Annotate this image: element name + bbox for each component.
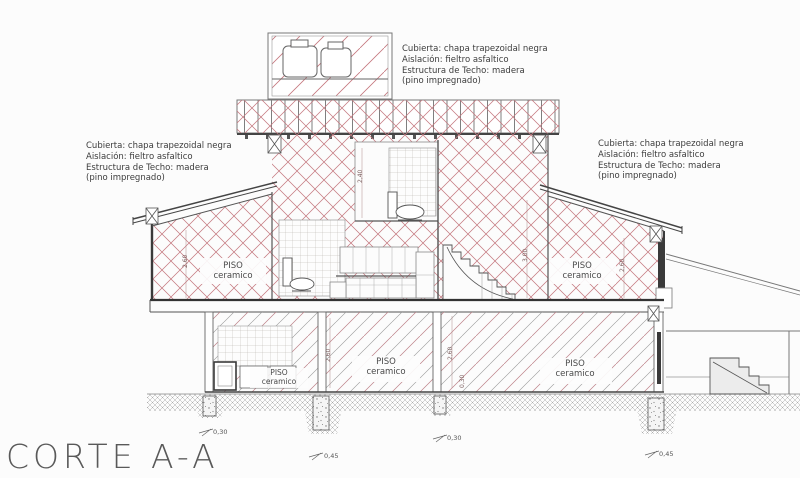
flat-roof-band [237, 100, 559, 137]
water-tank-tower [268, 33, 392, 99]
note-line: (pino impregnado) [598, 171, 744, 182]
note-line: (pino impregnado) [86, 173, 232, 184]
exterior-terrace [666, 254, 800, 394]
dimension-label: 0,30 [213, 428, 227, 436]
floor-label-lower-center: PISO ceramico [352, 357, 420, 377]
note-line: Estructura de Techo: madera [402, 66, 548, 77]
foundation-footing [434, 396, 446, 414]
tiled-wall [218, 326, 292, 366]
note-line: Aislación: fieltro asfaltico [86, 152, 232, 163]
dimension-label: 2,60 [619, 259, 626, 272]
note-line: Cubierta: chapa trapezoidal negra [598, 139, 744, 150]
note-line: Estructura de Techo: madera [86, 163, 232, 174]
kitchen-cabinets [330, 247, 434, 298]
wall-section [433, 312, 441, 392]
note-line: Aislación: fieltro asfaltico [402, 55, 548, 66]
floor-slab [150, 300, 664, 312]
drawing-title: CORTE A-A [6, 437, 219, 476]
dimension-label: 2,40 [357, 170, 364, 183]
note-line: Cubierta: chapa trapezoidal negra [86, 141, 232, 152]
ground-band [147, 394, 800, 434]
dimension-label: 2,60 [182, 255, 189, 268]
water-tank [321, 48, 351, 77]
foundation-footing [203, 396, 216, 416]
floor-label-lower-right: PISO ceramico [538, 359, 612, 379]
roof-note-top: Cubierta: chapa trapezoidal negra Aislac… [402, 44, 548, 87]
dimension-label: 0,30 [447, 434, 461, 442]
note-line: Aislación: fieltro asfaltico [598, 150, 744, 161]
roof-note-left: Cubierta: chapa trapezoidal negra Aislac… [86, 141, 232, 184]
foundation-footing [648, 398, 664, 430]
blueprint-canvas: Cubierta: chapa trapezoidal negra Aislac… [0, 0, 800, 478]
roof-note-right: Cubierta: chapa trapezoidal negra Aislac… [598, 139, 744, 182]
wall-section [205, 312, 213, 392]
note-line: (pino impregnado) [402, 76, 548, 87]
dimension-label: 0,45 [324, 452, 338, 460]
dimension-label: 2,60 [447, 347, 454, 360]
dimension-label: 2,60 [325, 349, 332, 362]
floor-label-upper-left: PISO ceramico [198, 261, 268, 281]
floor-label-upper-right: PISO ceramico [546, 261, 618, 281]
dimension-label: 3,00 [522, 249, 529, 262]
note-line: Estructura de Techo: madera [598, 161, 744, 172]
section-drawing [0, 0, 800, 478]
floor-label-lower-left: PISO ceramico [248, 368, 310, 386]
note-line: Cubierta: chapa trapezoidal negra [402, 44, 548, 55]
water-tank [283, 46, 317, 77]
foundation-footing [313, 396, 329, 430]
exterior-stairs [710, 358, 769, 394]
dimension-label: 0,45 [659, 450, 673, 458]
dimension-label: 0,30 [459, 375, 466, 388]
